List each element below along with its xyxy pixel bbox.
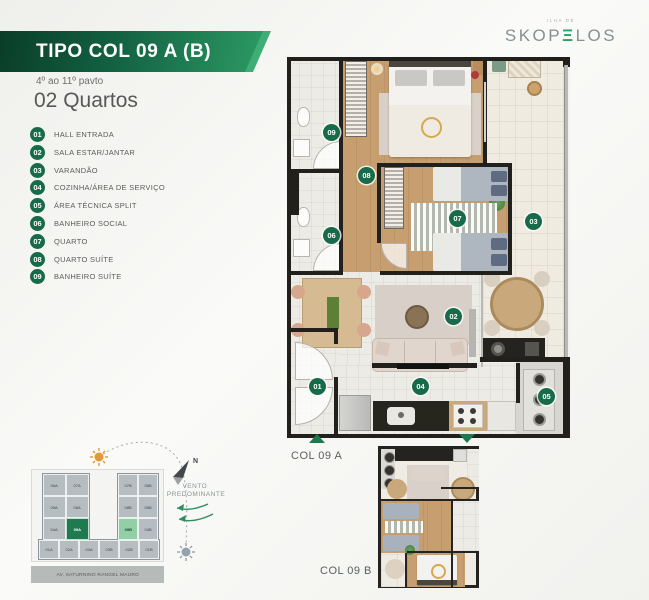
legend-item: 09BANHEIRO SUÍTE xyxy=(30,269,165,284)
legend-item: 07QUARTO xyxy=(30,234,165,249)
legend-item: 03VARANDÃO xyxy=(30,163,165,178)
legend-item: 05ÁREA TÉCNICA SPLIT xyxy=(30,198,165,213)
room-legend: 01HALL ENTRADA 02SALA ESTAR/JANTAR 03VAR… xyxy=(30,127,165,287)
col-a-label: COL 09 A xyxy=(291,450,342,462)
dining-table xyxy=(302,278,362,348)
room-badge: 02 xyxy=(445,308,462,325)
unit-cell: 05A xyxy=(43,496,66,518)
kitchen-cabinet xyxy=(487,401,516,431)
double-bed xyxy=(389,61,471,157)
north-compass-icon: N xyxy=(173,458,198,485)
room-badge: 06 xyxy=(323,227,340,244)
red-flower xyxy=(471,71,479,79)
balcony-chair xyxy=(534,271,550,287)
coffee-table xyxy=(405,305,429,329)
side-cabinet xyxy=(469,309,476,357)
dining-chair xyxy=(357,285,371,299)
room-badge: 08 xyxy=(358,167,375,184)
fridge xyxy=(339,395,371,431)
brand-name: SKOPΞLOS xyxy=(486,26,636,46)
legend-item: 04COZINHA/ÁREA DE SERVIÇO xyxy=(30,180,165,195)
brand-e-glyph: Ξ xyxy=(562,26,575,45)
room-badge: 09 xyxy=(323,124,340,141)
lamp xyxy=(371,63,383,75)
wardrobe xyxy=(345,61,367,137)
legend-badge: 08 xyxy=(30,252,45,267)
legend-item: 02SALA ESTAR/JANTAR xyxy=(30,145,165,160)
legend-item: 06BANHEIRO SOCIAL xyxy=(30,216,165,231)
unit-cell: 04A xyxy=(43,518,66,540)
legend-badge: 01 xyxy=(30,127,45,142)
legend-badge: 09 xyxy=(30,269,45,284)
floor-plan-col-09-a: 01 02 03 04 05 06 07 08 09 xyxy=(287,57,570,438)
floor-plan-col-09-b xyxy=(378,446,479,588)
brand-tagline: ILHA DE xyxy=(520,18,603,23)
col-b-marker xyxy=(459,434,475,443)
floors-label: 4º ao 11º pavto xyxy=(36,76,103,87)
legend-badge: 05 xyxy=(30,198,45,213)
legend-badge: 02 xyxy=(30,145,45,160)
room-badge: 01 xyxy=(309,378,326,395)
col-b-label: COL 09 B xyxy=(320,565,372,577)
north-label: N xyxy=(193,458,198,465)
title-banner: TIPO COL 09 A (B) xyxy=(0,31,263,72)
tray-table xyxy=(527,81,542,96)
glass-railing xyxy=(564,65,568,359)
sun-icon-evening xyxy=(177,543,195,561)
sink xyxy=(293,239,310,257)
legend-badge: 06 xyxy=(30,216,45,231)
single-bed xyxy=(433,233,510,271)
legend-badge: 04 xyxy=(30,180,45,195)
toilet xyxy=(297,107,310,127)
sink xyxy=(293,139,310,157)
sun-icon-morning xyxy=(90,448,108,466)
col-a-marker xyxy=(309,434,325,443)
unit-cell: 01A xyxy=(39,540,59,559)
room-badge: 05 xyxy=(538,388,555,405)
tv xyxy=(397,364,449,369)
lounger xyxy=(508,60,541,78)
room-badge: 03 xyxy=(525,213,542,230)
room-badge: 04 xyxy=(412,378,429,395)
street-label: AV. SATURNINO RANGEL MAURO xyxy=(56,572,139,577)
stove-counter xyxy=(449,401,487,431)
unit-cell: 06A xyxy=(43,474,66,496)
page: TIPO COL 09 A (B) 4º ao 11º pavto 02 Qua… xyxy=(0,0,649,600)
wardrobe xyxy=(384,167,404,229)
balcony-chair xyxy=(484,320,500,336)
legend-badge: 03 xyxy=(30,163,45,178)
single-bed xyxy=(433,167,510,201)
green-cushion xyxy=(492,60,506,72)
dining-chair xyxy=(291,285,305,299)
legend-item: 08QUARTO SUÍTE xyxy=(30,252,165,267)
room-badge: 07 xyxy=(449,210,466,227)
dining-chair xyxy=(357,323,371,337)
legend-item: 01HALL ENTRADA xyxy=(30,127,165,142)
compass-sun-wind-graphic: N VENTO PREDOMINANTE xyxy=(75,432,240,572)
balcony-chair xyxy=(534,320,550,336)
wind-label: VENTO PREDOMINANTE xyxy=(167,483,226,498)
kitchen-counter xyxy=(373,401,449,431)
bedrooms-label: 02 Quartos xyxy=(34,89,138,113)
brand-logo: ILHA DE SKOPΞLOS xyxy=(486,16,636,46)
page-title: TIPO COL 09 A (B) xyxy=(36,41,211,62)
legend-badge: 07 xyxy=(30,234,45,249)
